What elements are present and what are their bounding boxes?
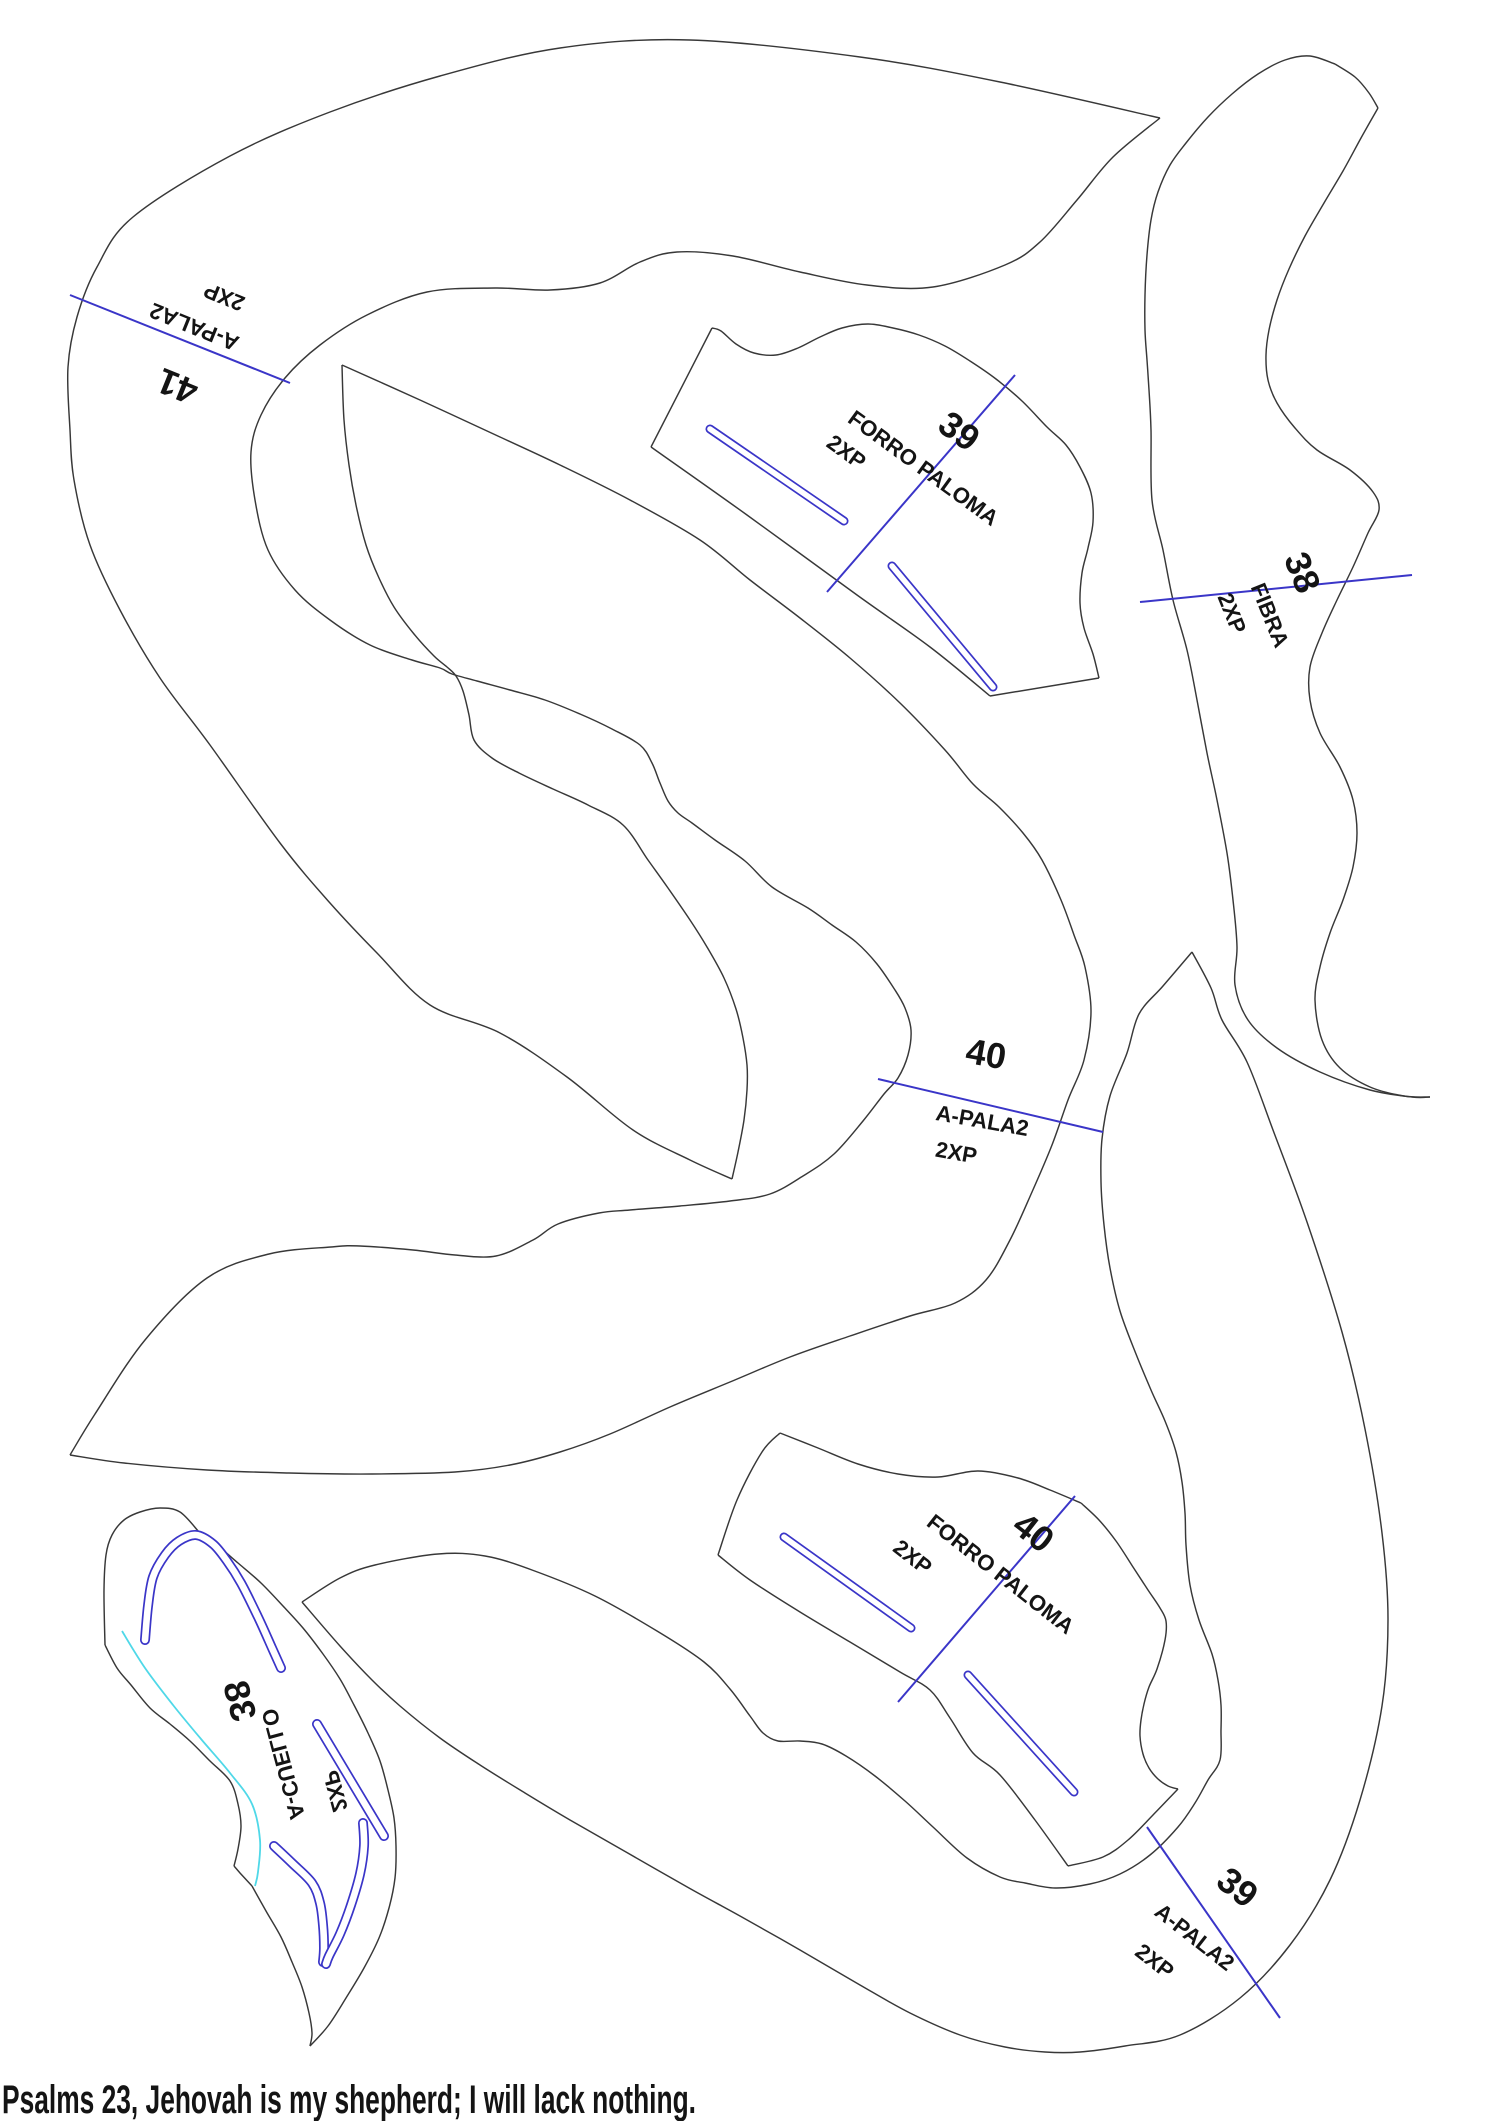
svg-text:40: 40 (963, 1030, 1010, 1077)
svg-text:Psalms 23, Jehovah is my sheph: Psalms 23, Jehovah is my shepherd; I wil… (2, 2078, 696, 2121)
